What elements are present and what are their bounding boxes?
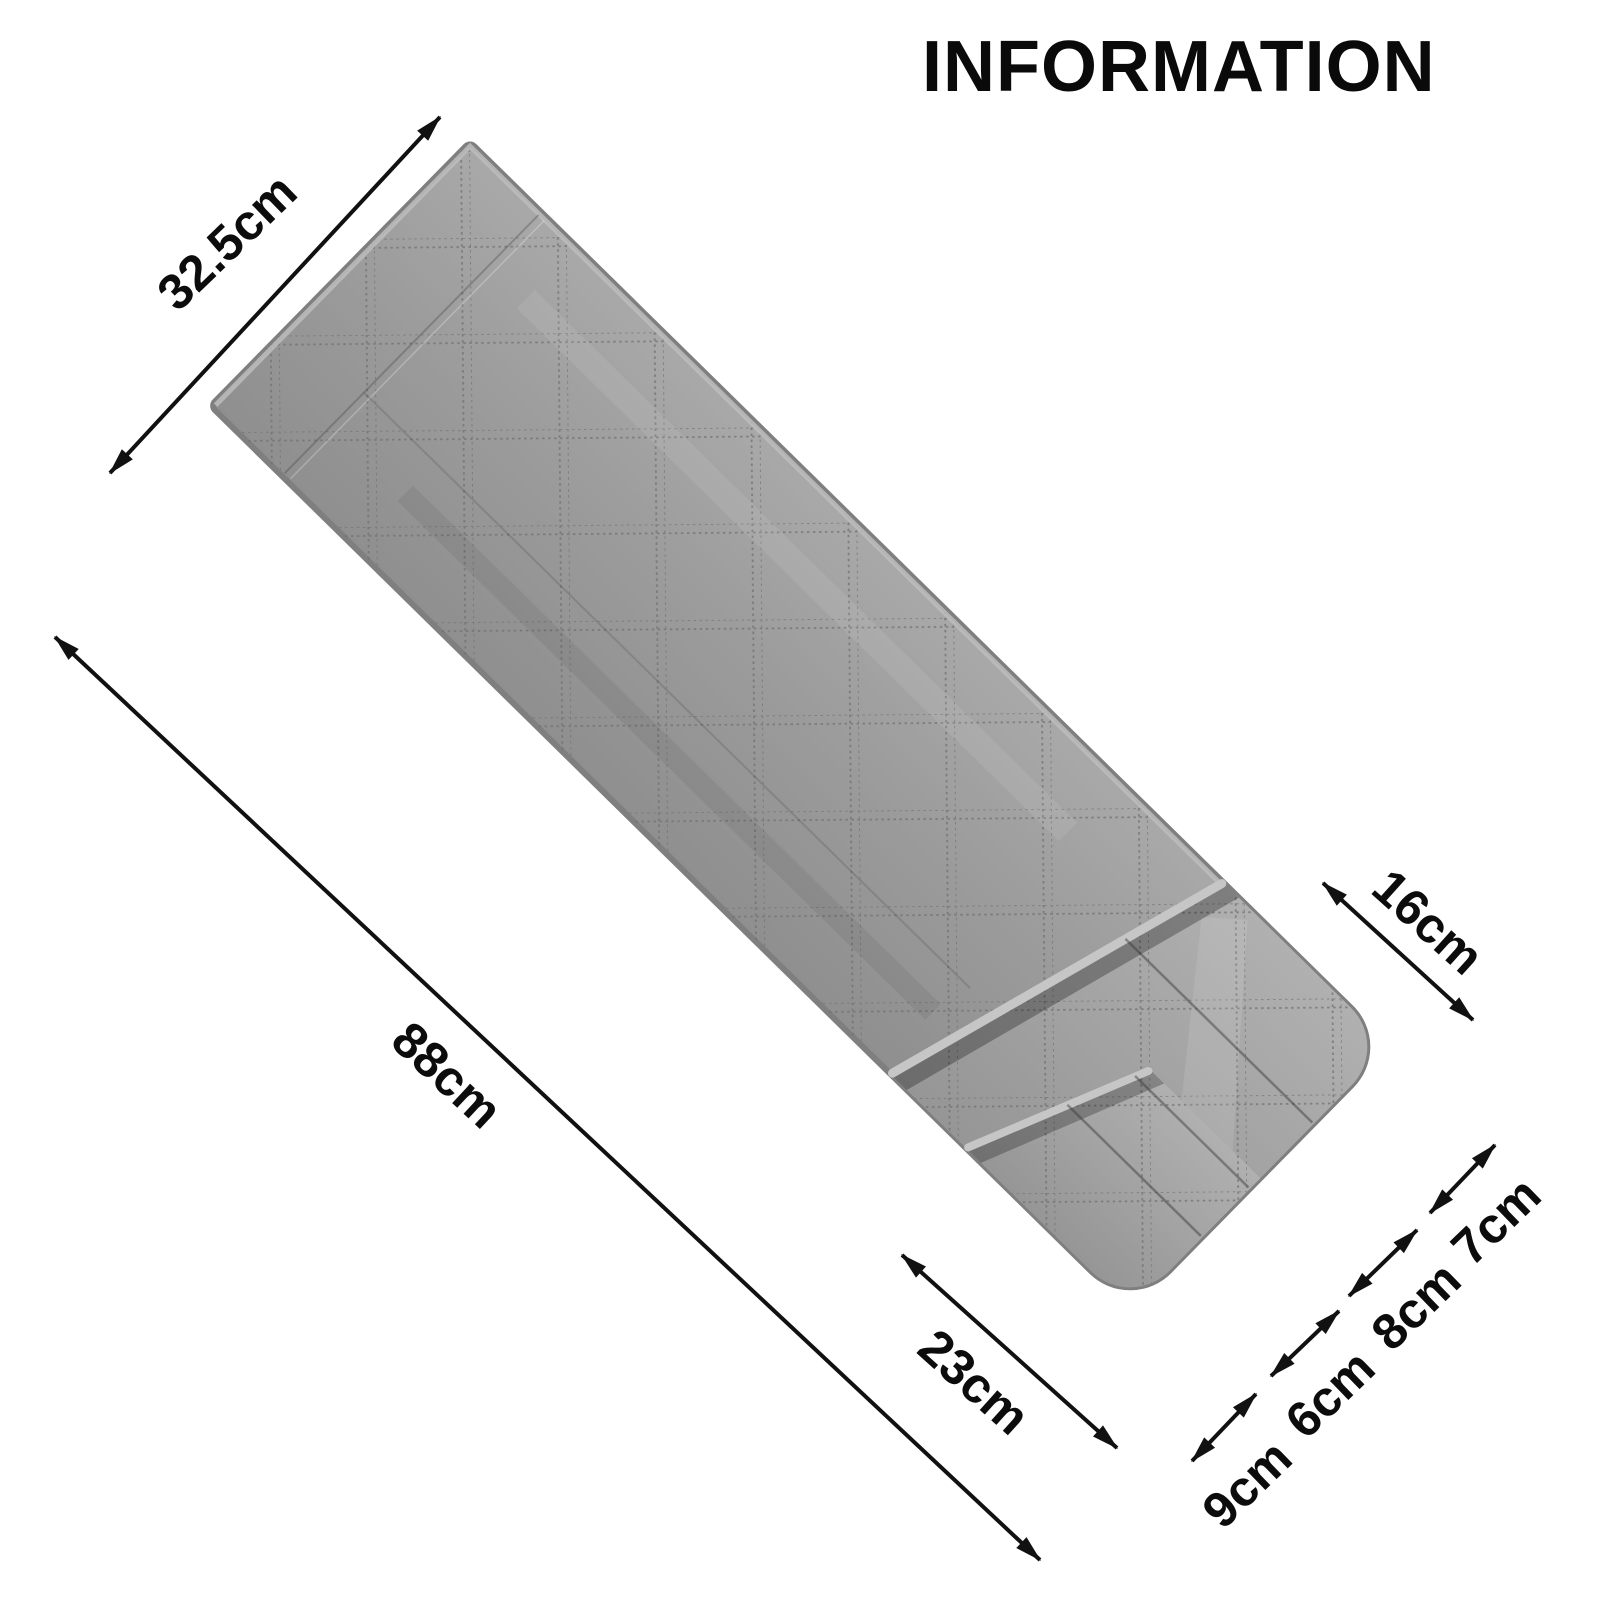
dimension-label-length: 88cm bbox=[381, 1011, 513, 1139]
product-dimension-diagram: 32.5cm 88cm 16cm 23cm 9cm bbox=[0, 0, 1600, 1600]
dimension-label-top-width: 32.5cm bbox=[147, 163, 308, 321]
dimension-pocket-2: 6cm bbox=[1271, 1311, 1385, 1449]
organizer-product bbox=[211, 142, 1390, 1310]
dimension-label-side-pocket: 16cm bbox=[1362, 858, 1495, 985]
diagram-canvas: INFORMATION bbox=[0, 0, 1600, 1600]
dimension-pocket-panel: 23cm bbox=[902, 1255, 1117, 1448]
dimension-label-pocket-panel: 23cm bbox=[908, 1318, 1041, 1445]
dimension-pocket-4: 7cm bbox=[1430, 1145, 1551, 1276]
dimension-side-pocket: 16cm bbox=[1323, 858, 1494, 1020]
